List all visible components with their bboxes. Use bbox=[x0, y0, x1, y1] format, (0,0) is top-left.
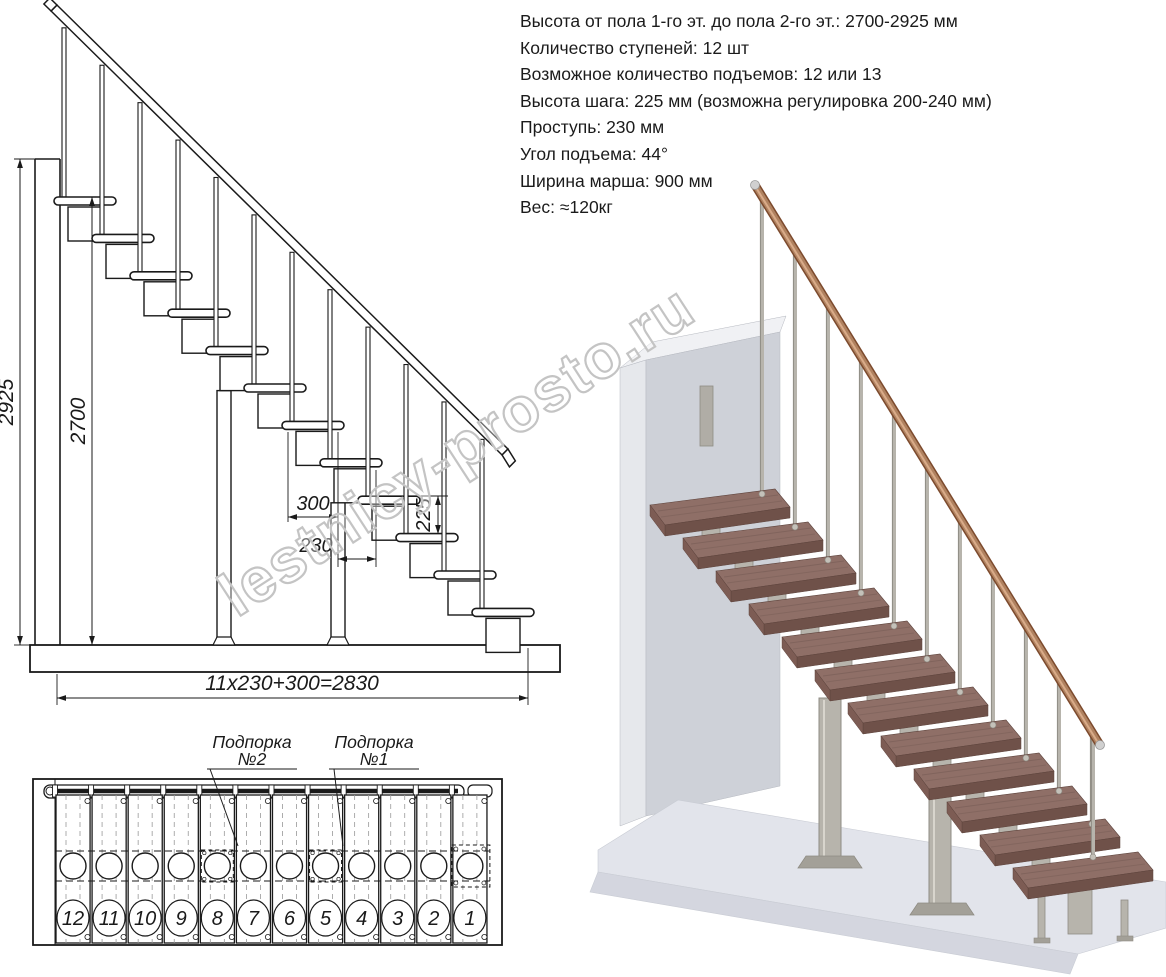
spec-line: Угол подъема: 44° bbox=[520, 141, 992, 168]
plan-step-number: 11 bbox=[99, 908, 120, 930]
plan-step-number: 8 bbox=[212, 908, 223, 930]
plan-step-number: 9 bbox=[176, 908, 187, 930]
stair-drawing-page: 2925270030023022511x230+300=283012111098… bbox=[0, 0, 1166, 977]
dimension-total-height: 2925 bbox=[0, 378, 18, 426]
plan-step-number: 10 bbox=[134, 908, 156, 930]
plan-step-number: 6 bbox=[284, 908, 296, 930]
spec-line: Проступь: 230 мм bbox=[520, 114, 992, 141]
spec-line: Высота шага: 225 мм (возможна регулировк… bbox=[520, 88, 992, 115]
spec-line: Количество ступеней: 12 шт bbox=[520, 35, 992, 62]
spec-line: Ширина марша: 900 мм bbox=[520, 168, 992, 195]
spec-list: Высота от пола 1-го эт. до пола 2-го эт.… bbox=[520, 8, 992, 221]
dimension-clear-height: 2700 bbox=[67, 397, 90, 445]
plan-step-number: 4 bbox=[356, 908, 367, 930]
spec-line: Высота от пола 1-го эт. до пола 2-го эт.… bbox=[520, 8, 992, 35]
plan-step-number: 3 bbox=[392, 908, 403, 930]
spec-line: Возможное количество подъемов: 12 или 13 bbox=[520, 61, 992, 88]
dimension-total-run: 11x230+300=2830 bbox=[205, 672, 379, 695]
plan-step-number: 7 bbox=[248, 908, 260, 930]
callout-support1-number: №1 bbox=[360, 749, 389, 769]
callout-support2-number: №2 bbox=[238, 749, 267, 769]
spec-line: Вес: ≈120кг bbox=[520, 194, 992, 221]
plan-step-number: 12 bbox=[62, 908, 84, 930]
plan-step-number: 5 bbox=[320, 908, 332, 930]
plan-step-number: 1 bbox=[464, 908, 475, 930]
plan-step-number: 2 bbox=[427, 908, 439, 930]
plan-view-drawing: 121110987654321Подпорка№2Подпорка№1 bbox=[33, 732, 502, 945]
